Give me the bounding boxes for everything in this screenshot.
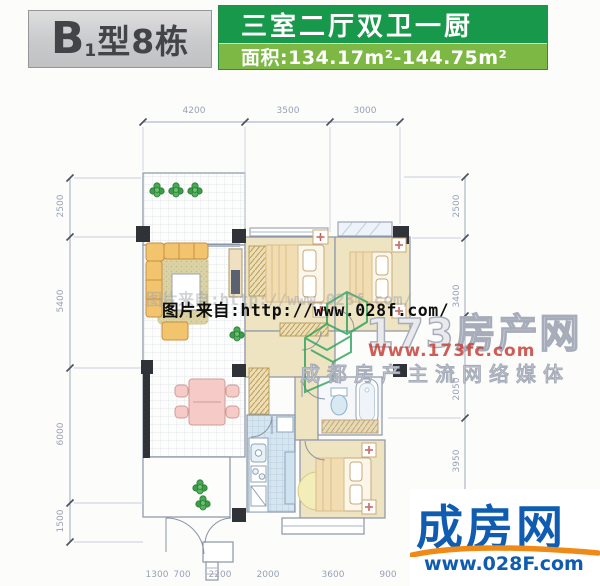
dining-chair [175,385,188,397]
door-arc [205,518,231,543]
dining-chair [226,406,239,418]
unit-summary-banner: 三室二厅双卫一厨 面积:134.17m²-144.75m² [218,5,548,70]
dim-top-2: 3500 [268,106,308,116]
dining-chair [226,385,239,397]
passage [295,377,318,440]
wardrobe [249,246,268,296]
dim-bottom-5: 3600 [313,570,353,580]
coffee-table [172,274,200,310]
bed [266,245,324,302]
tv [231,270,240,294]
toilet [331,395,347,415]
fridge [277,417,293,432]
type-subscript: 1 [84,41,96,61]
column [393,364,407,377]
column [136,226,150,242]
dim-right-3: 2050 [452,371,462,407]
door-arc [166,518,204,554]
bath-counter [322,420,378,433]
area-label: 面积:134.17m²-144.75m² [219,43,547,69]
kitchen-side-counter [285,452,295,504]
type-prefix: B [51,17,85,61]
dining-chair [175,406,188,418]
dim-bottom-2: 700 [162,570,202,580]
dim-left-3: 6000 [56,416,66,452]
dim-right-2: 3400 [452,278,462,314]
floorplan-page: B1型8栋 三室二厅双卫一厨 面积:134.17m²-144.75m² 4200… [0,0,600,586]
entry-area [143,457,230,517]
type-suffix: 型8栋 [97,15,189,63]
dim-bottom-3: 2200 [200,570,240,580]
column [232,229,246,243]
dim-left-1: 2500 [56,188,66,224]
dim-bottom-6: 900 [368,570,408,580]
bed [350,252,392,302]
site-logo: 成房网 www.028F.com [410,489,600,586]
site-logo-url: www.028F.com [424,553,584,575]
dim-bottom-4: 2000 [248,570,288,580]
dim-right-1: 2500 [452,188,462,224]
column [232,508,246,522]
layout-title: 三室二厅双卫一厨 [219,6,547,43]
dim-top-3: 3000 [345,106,385,116]
building-type-label: B1型8栋 [28,10,212,68]
column [232,364,246,377]
porch [203,542,233,562]
armchair [162,322,188,340]
dim-left-2: 5400 [56,283,66,319]
dim-right-4: 3950 [452,443,462,479]
load-bearing-wall [143,360,150,458]
dim-left-4: 1500 [56,503,66,539]
dim-top-1: 4200 [174,106,214,116]
wardrobe [249,368,269,414]
